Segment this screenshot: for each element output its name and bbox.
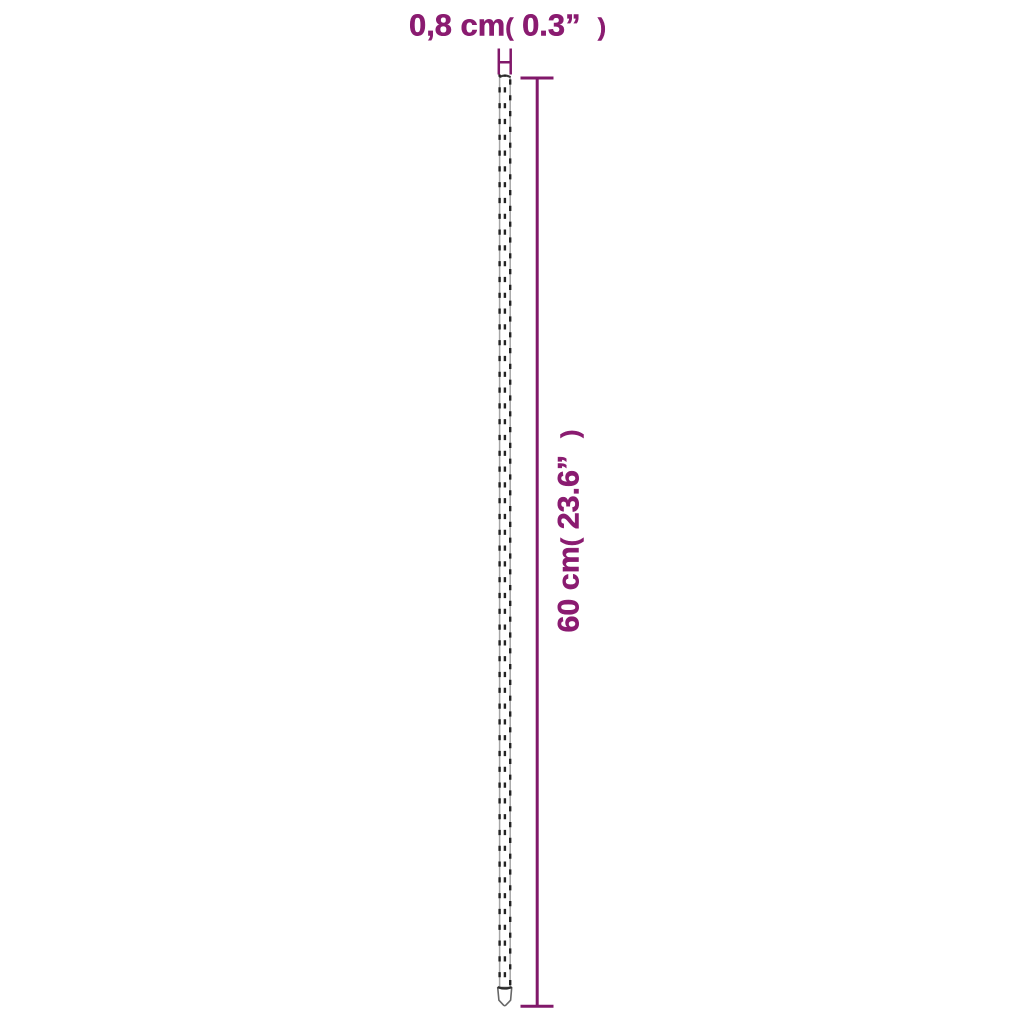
svg-text:0,8 cm( 0.3” ): 0,8 cm( 0.3” ) <box>409 7 606 42</box>
svg-text:60 cm( 23.6” ): 60 cm( 23.6” ) <box>553 430 586 633</box>
